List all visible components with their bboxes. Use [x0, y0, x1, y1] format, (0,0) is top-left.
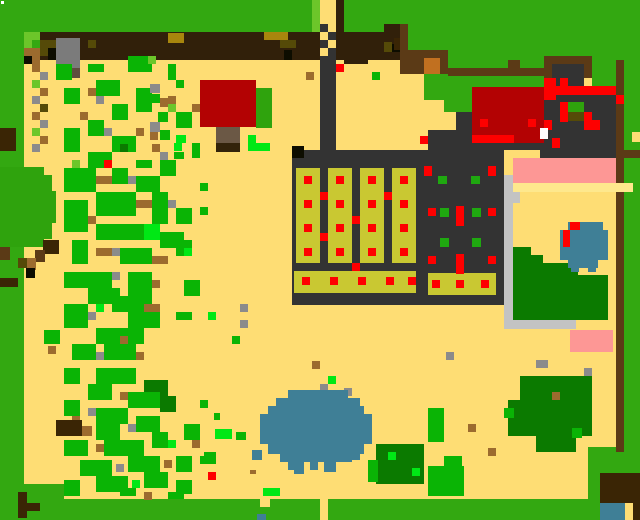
plot-sprout [438, 176, 447, 184]
bush [72, 240, 88, 264]
dot [312, 361, 320, 369]
trough-foot-1 [571, 266, 579, 272]
pink-lower [570, 330, 613, 352]
bush [368, 460, 378, 482]
dot [96, 248, 112, 256]
black-dot [24, 56, 32, 64]
path-check-4 [328, 40, 336, 48]
dot [96, 444, 104, 452]
house-tree [256, 88, 272, 128]
crop-berry [358, 277, 366, 285]
bush-dark [536, 436, 576, 452]
red-dot-a [560, 78, 568, 86]
pen-green-1 [513, 247, 531, 320]
bush [160, 160, 176, 176]
bush [136, 416, 160, 432]
bush [215, 429, 232, 439]
dot [240, 320, 248, 328]
bottom-left-grass [0, 484, 64, 520]
dot [48, 346, 56, 354]
dot [584, 368, 592, 376]
branch [35, 250, 45, 262]
red-dot [104, 160, 112, 168]
tree-canopy [0, 167, 44, 247]
barn-dot-1 [480, 119, 488, 127]
plot-berry [428, 208, 436, 216]
sand-notch-bottom [260, 497, 270, 507]
brown-dot-field [306, 72, 314, 80]
dot [88, 216, 96, 224]
crop-berry [320, 192, 328, 200]
crops-corner-black [292, 146, 304, 158]
dot [128, 176, 136, 184]
pond-edge [276, 398, 360, 406]
bush [72, 344, 96, 360]
dot [40, 72, 48, 80]
dot [120, 336, 128, 344]
path-check-2 [328, 32, 336, 40]
bush [64, 480, 80, 496]
bush [184, 248, 192, 256]
crop-berry [408, 277, 416, 285]
green-dot-field [372, 72, 380, 80]
bush [174, 152, 184, 159]
plot-sprout [471, 176, 480, 184]
plot-berry [488, 208, 496, 216]
big-wood [56, 420, 82, 436]
pond-edge [288, 390, 348, 398]
bush [104, 440, 144, 456]
bush [72, 160, 80, 168]
crop-berry [320, 233, 328, 241]
plot-berry [488, 166, 496, 176]
fence-mustard-1 [264, 32, 288, 40]
pale-gate [616, 183, 633, 192]
barn-dot-2 [528, 119, 536, 127]
crop-berry [400, 224, 408, 232]
crop-berry [481, 280, 489, 288]
bush [128, 312, 160, 328]
brown-dot [32, 56, 40, 64]
crop-berry [304, 224, 312, 232]
pen-frame-left [504, 175, 513, 329]
red-dot-b [592, 120, 600, 130]
pen-frame-notch [513, 192, 520, 203]
pond-edge [268, 406, 364, 414]
teal-notch [257, 514, 266, 520]
dot [40, 120, 48, 128]
path-red-dot [336, 64, 344, 72]
path-dark-dot [320, 24, 328, 32]
bush [176, 80, 184, 88]
bush [176, 312, 192, 320]
dot [192, 440, 200, 448]
fence-rail [448, 68, 548, 76]
bush [152, 432, 168, 448]
dot [32, 128, 40, 136]
bush-dark [376, 444, 424, 484]
bush [152, 192, 168, 224]
dot [104, 128, 112, 136]
fence-rail-bump [508, 60, 520, 68]
lime-l-2 [248, 143, 270, 151]
bush [192, 143, 200, 158]
corner-sand [625, 503, 633, 520]
branch [18, 258, 27, 268]
bush [148, 56, 156, 64]
bush [144, 472, 168, 488]
bush [214, 413, 220, 420]
bush [176, 208, 192, 224]
barn-red-strip [472, 135, 514, 143]
crop-berry [400, 248, 408, 256]
dot [112, 248, 120, 256]
fence-mustard-2 [168, 33, 184, 43]
dot [40, 104, 48, 112]
crop-berry [368, 200, 376, 208]
dot [80, 112, 88, 120]
harvest-row-left[interactable] [294, 271, 416, 293]
red-upright-2 [584, 112, 592, 130]
plot-sprout [440, 238, 449, 247]
crop-berry [304, 176, 312, 184]
crop-berry [304, 248, 312, 256]
dot [536, 360, 548, 368]
crop-berry [352, 216, 360, 224]
corner-water [600, 503, 625, 520]
fence-olive-4 [384, 42, 392, 52]
bush [88, 384, 112, 400]
dot [150, 122, 160, 132]
bush [120, 144, 128, 152]
brown-under-fence [24, 48, 40, 56]
crop-berry [368, 176, 376, 184]
dot [116, 464, 124, 472]
farm-map [0, 0, 640, 520]
branch [43, 240, 59, 254]
bush [160, 130, 170, 140]
bush [64, 400, 80, 416]
pole-step [584, 64, 592, 76]
bush [388, 452, 396, 460]
pen-green-4 [578, 275, 608, 320]
bush [444, 456, 462, 494]
dot [96, 176, 112, 184]
branch [26, 268, 35, 278]
pond-dot [252, 450, 262, 460]
red-dot [208, 472, 216, 480]
bush [168, 492, 184, 499]
lime-dot [174, 143, 182, 151]
bush [64, 440, 88, 456]
bush [112, 104, 128, 120]
path-lightgreen [312, 0, 320, 32]
bush [236, 432, 246, 440]
bush [88, 120, 104, 136]
bush [64, 304, 88, 328]
red-dot-e [420, 136, 428, 144]
lightgreen-edge-1 [24, 32, 32, 48]
pond-foot [324, 462, 336, 472]
crop-berry [302, 277, 310, 285]
plot-berry [488, 256, 496, 264]
dot [88, 312, 96, 320]
bush [120, 248, 152, 264]
bush [96, 424, 120, 440]
bush [64, 368, 80, 384]
dot [152, 144, 160, 152]
pen-green-2 [531, 255, 551, 320]
bush [96, 408, 128, 424]
plot-berry [456, 254, 464, 274]
crop-berry [336, 176, 344, 184]
bush [128, 456, 160, 472]
dot [488, 448, 496, 456]
pale-path [513, 183, 616, 192]
red-upright [560, 102, 568, 122]
red-band [548, 86, 616, 95]
bush [200, 207, 208, 215]
red-dot-pole [616, 95, 624, 104]
dot [40, 88, 48, 96]
crop-berry [336, 248, 344, 256]
pond-main[interactable] [260, 414, 372, 444]
bush [176, 456, 192, 472]
dot [150, 84, 160, 93]
plot-berry [424, 166, 432, 176]
bush [184, 280, 200, 296]
dot [446, 352, 454, 360]
bush [96, 224, 144, 240]
bottom-border-grass [0, 499, 600, 520]
pink-terrace [513, 158, 616, 184]
bush [184, 424, 200, 440]
crop-berry [336, 200, 344, 208]
bush [96, 192, 136, 216]
crop-berry [432, 280, 440, 288]
dot [160, 152, 168, 160]
bush [160, 396, 176, 412]
fence-under-bit [344, 56, 368, 64]
path-check-6 [328, 48, 336, 56]
dot [150, 132, 158, 140]
crop-berry [456, 280, 464, 288]
dot [96, 352, 104, 360]
bush [44, 330, 60, 344]
dot [164, 460, 172, 468]
bush [136, 160, 152, 168]
pen-frame-bottom [504, 320, 576, 329]
dot [152, 280, 160, 288]
path-fence-strip [336, 0, 344, 32]
red-dot-d [552, 138, 560, 148]
bush [232, 336, 240, 344]
bush [132, 480, 140, 488]
bush [150, 94, 160, 103]
tree-trunk [216, 127, 240, 143]
white-dot [540, 128, 548, 139]
dot [152, 256, 168, 264]
path-check-5 [320, 48, 328, 56]
grass-patch-2 [444, 88, 472, 112]
bush [504, 408, 514, 418]
bush [204, 452, 216, 464]
sand-notch-right [632, 132, 640, 142]
dot [40, 136, 48, 144]
plot-berry [428, 256, 436, 264]
dot [468, 424, 476, 432]
grass-gap-right [592, 56, 616, 86]
bush [128, 272, 152, 296]
bush [96, 368, 136, 384]
bush [412, 468, 420, 476]
bush [200, 183, 208, 191]
pond-foot [310, 462, 318, 470]
bush [168, 104, 176, 112]
plot-berry [456, 206, 464, 226]
branch [0, 278, 18, 287]
crop-berry [384, 192, 392, 200]
crop-berry [304, 200, 312, 208]
dot [88, 408, 96, 416]
bush [176, 112, 192, 128]
bush [64, 88, 80, 104]
fence-black-2 [48, 48, 56, 60]
bush [96, 304, 104, 312]
trunk-shadow [216, 143, 240, 152]
bush [96, 80, 120, 96]
left-wood-block [0, 128, 16, 151]
fence-black-1 [284, 50, 292, 60]
dot [128, 424, 136, 432]
dot [32, 144, 40, 152]
crop-berry [400, 176, 408, 184]
dot [120, 392, 128, 400]
bush [64, 128, 80, 152]
bush [328, 376, 336, 384]
trough-red-2 [563, 230, 570, 247]
pen-sand-hole [543, 255, 551, 263]
lime-l-1 [248, 135, 256, 143]
bush [168, 64, 176, 80]
lightgreen-edge-2 [32, 32, 40, 40]
right-border-grass [624, 55, 640, 447]
bush [128, 392, 160, 408]
right-fence-tick [400, 24, 408, 52]
dot [144, 304, 160, 312]
dot [136, 200, 152, 208]
house-body[interactable] [200, 80, 256, 127]
dot [82, 426, 92, 436]
bush [112, 168, 128, 184]
bush [80, 460, 112, 476]
bush [144, 224, 160, 240]
pond-edge [280, 454, 352, 462]
dot [32, 112, 40, 120]
fence-step [384, 24, 400, 34]
path-check-1 [320, 32, 328, 40]
path-line [320, 56, 336, 150]
roof-green-window [568, 102, 584, 112]
crop-berry [400, 200, 408, 208]
bush [200, 400, 208, 408]
bush [136, 176, 160, 192]
tree-canopy [52, 191, 56, 223]
bush [572, 428, 582, 438]
plot-sprout [472, 208, 481, 217]
path-check-3 [320, 40, 328, 48]
dot [192, 104, 200, 112]
dot [168, 200, 176, 208]
bush [158, 112, 168, 122]
pond-bump [344, 452, 360, 460]
bush [56, 64, 72, 80]
bush [168, 440, 176, 448]
dot [32, 64, 40, 72]
bottom-path-sand [320, 495, 328, 520]
bush [263, 488, 280, 496]
dot [240, 304, 248, 312]
bush [88, 64, 104, 72]
dot [32, 80, 40, 88]
pond-foot [288, 462, 304, 470]
dot [96, 96, 104, 104]
bush [208, 312, 216, 320]
fence-brown-square [424, 58, 440, 74]
crop-berry [386, 277, 394, 285]
bush [64, 272, 112, 288]
dot [88, 88, 96, 96]
log [18, 503, 40, 511]
cursor-dot [1, 1, 4, 4]
corner-wood [600, 473, 640, 503]
tree-canopy [44, 175, 52, 239]
trough-red-1 [570, 222, 580, 230]
right-pole [616, 60, 624, 452]
trough-foot-2 [588, 266, 596, 272]
bush [64, 168, 96, 192]
pond-tip [294, 470, 304, 474]
dot [250, 470, 256, 474]
crop-berry [368, 248, 376, 256]
corner-wood-2 [633, 503, 640, 520]
crop-berry [336, 224, 344, 232]
dot [112, 272, 120, 280]
dot [144, 492, 152, 500]
bush [104, 344, 136, 360]
dot [136, 128, 144, 136]
fence-olive-3 [280, 40, 296, 48]
crop-berry [368, 224, 376, 232]
plot-sprout [472, 238, 481, 247]
dark-roof-wing-2 [428, 130, 456, 150]
bush [428, 408, 444, 442]
dot [136, 352, 144, 360]
branch [0, 247, 10, 260]
lime-dot [176, 135, 186, 143]
bush [120, 488, 136, 496]
dot [32, 96, 40, 104]
fence-olive-2 [88, 40, 96, 48]
bush [64, 200, 88, 232]
plot-sprout [440, 208, 449, 217]
dot [552, 392, 560, 400]
crop-berry [330, 277, 338, 285]
